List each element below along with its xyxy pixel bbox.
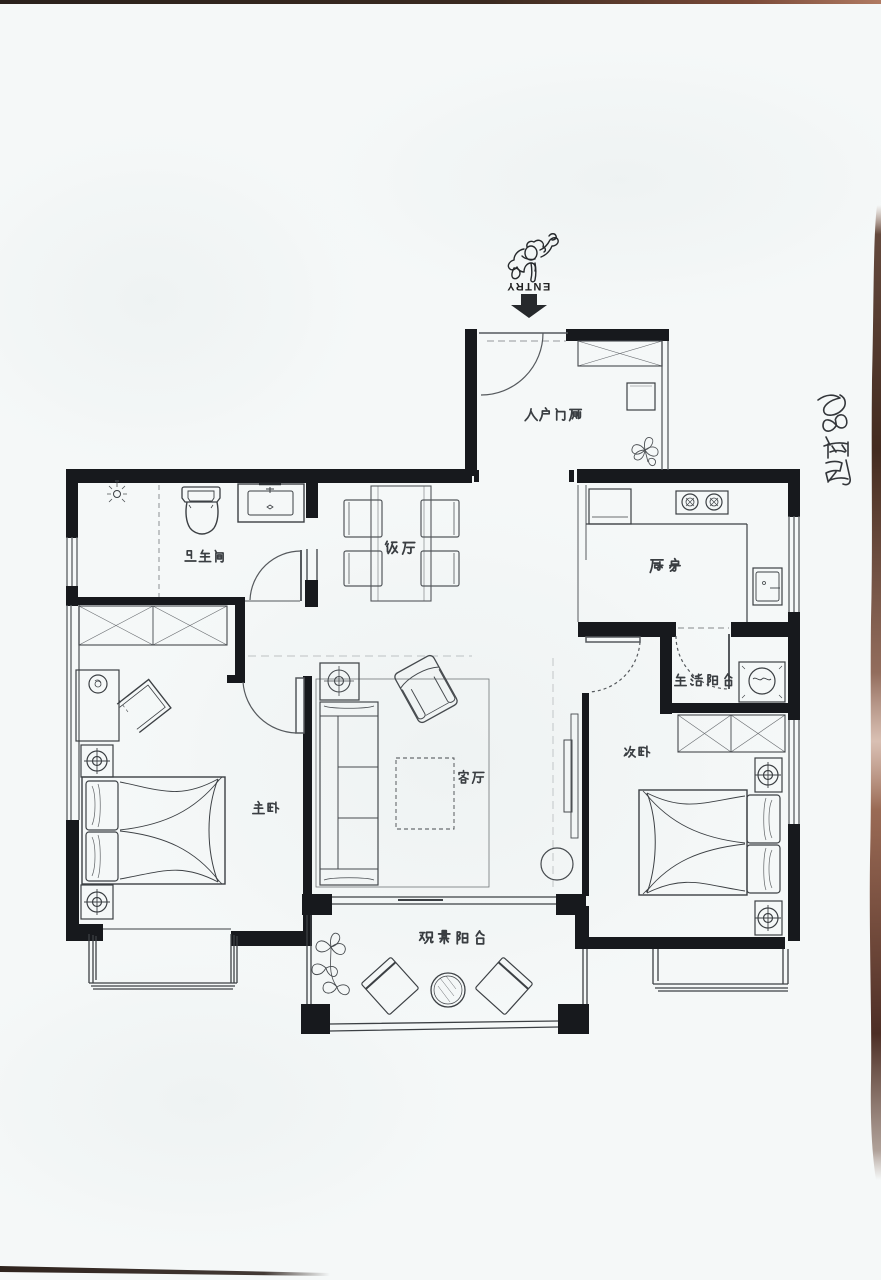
svg-text:ENTRY: ENTRY <box>506 280 550 292</box>
